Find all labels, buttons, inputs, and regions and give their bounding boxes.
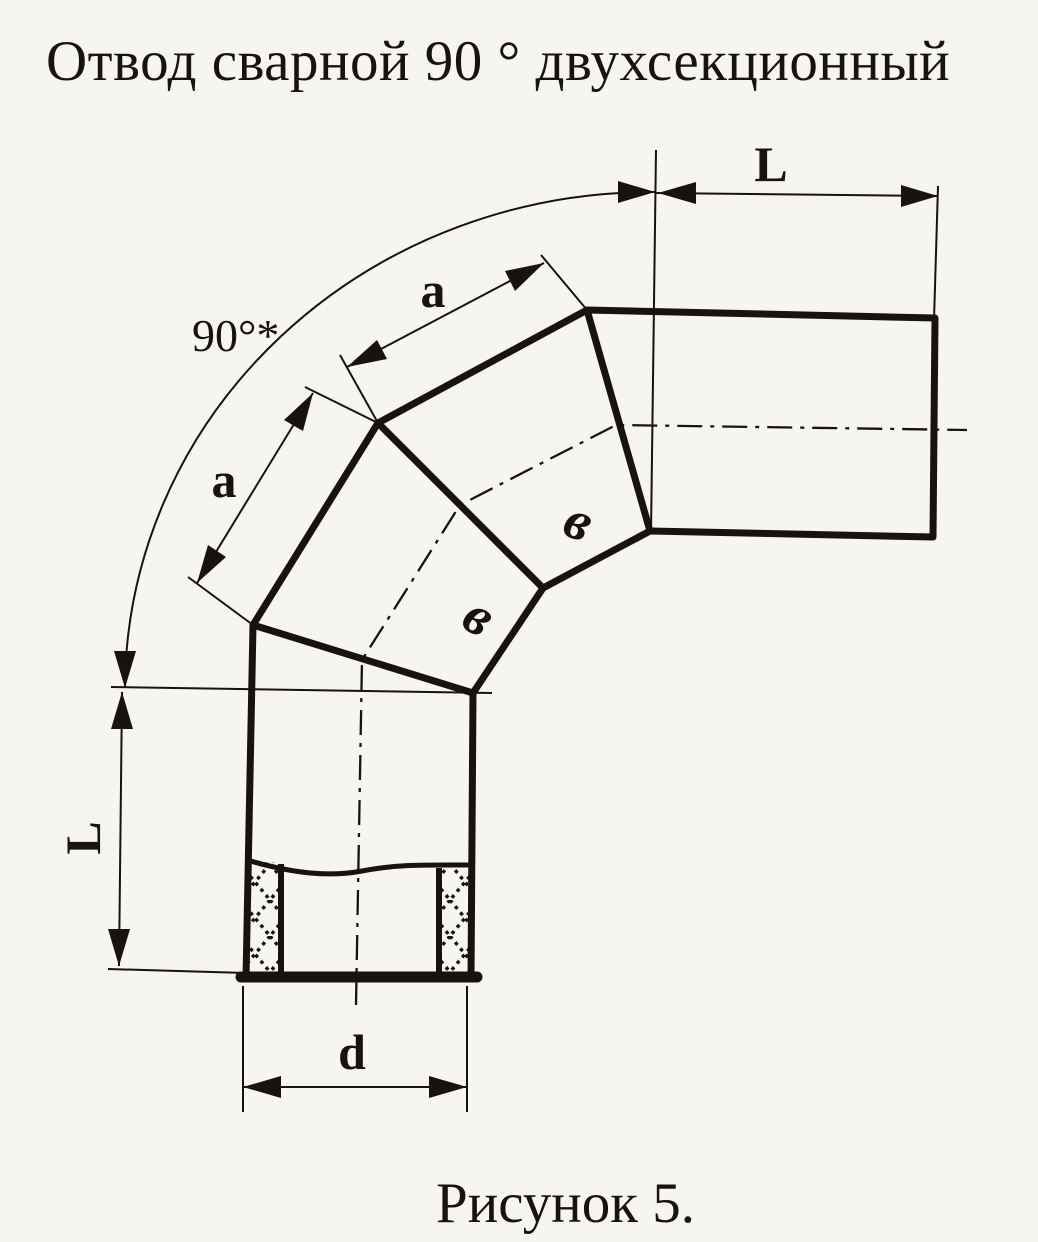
label-length-top: L [754, 136, 787, 192]
hatched-wall-left [249, 862, 279, 976]
label-segment-a-lower: a [212, 452, 237, 508]
scanned-page: Отвод сварной 90 ° двухсекционный [0, 0, 1038, 1242]
label-angle-90: 90°* [192, 310, 279, 361]
elbow-technical-drawing: Отвод сварной 90 ° двухсекционный [0, 0, 1038, 1242]
label-segment-a-upper: a [421, 262, 446, 318]
label-diameter-d: d [338, 1024, 366, 1080]
page-title: Отвод сварной 90 ° двухсекционный [46, 30, 950, 93]
figure-caption: Рисунок 5. [436, 1172, 695, 1235]
label-length-side: L [55, 821, 111, 854]
hatched-wall-right [440, 866, 469, 976]
